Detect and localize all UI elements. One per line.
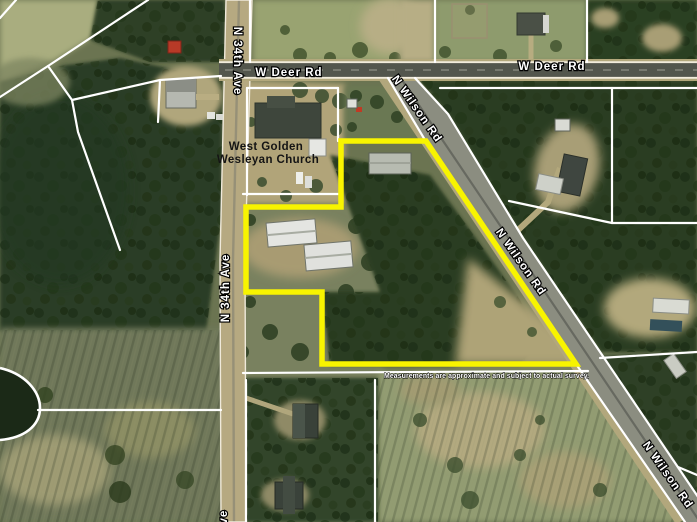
tan-patch-tr1: [591, 8, 619, 28]
shed-small: [347, 99, 357, 108]
garden-plot: [452, 4, 487, 38]
bush: [494, 296, 506, 308]
road-label-n34th-mid: N 34th Ave: [220, 254, 232, 323]
bush: [176, 471, 194, 489]
bush: [109, 481, 131, 503]
building-bottom-house1-roof: [293, 404, 305, 438]
building-church-main: [255, 103, 321, 138]
building-barn1: [266, 219, 317, 247]
building-top-house: [517, 13, 545, 35]
aerial-map[interactable]: W Deer Rd W Deer Rd N 34th Ave N 34th Av…: [0, 0, 697, 522]
building-church-wing: [267, 96, 295, 108]
church-label-line1: West Golden: [229, 141, 303, 153]
building-barn2: [304, 241, 353, 271]
road-label-n34th-top: N 34th Ave: [231, 27, 243, 96]
building-west-house-roof: [166, 79, 196, 92]
vehicles-dark: [650, 319, 683, 332]
building-top-house-porch: [543, 15, 549, 33]
tan-patch-tr2: [642, 24, 682, 52]
church-label-line2: Wesleyan Church: [217, 154, 319, 166]
field-top-tan: [400, 0, 435, 62]
building-mobile-home: [653, 298, 690, 314]
road-label-n34th-bottom-clipped: N 34th Ave: [218, 510, 230, 522]
vehicle-white: [305, 176, 312, 188]
road-label-deer-west: W Deer Rd: [255, 67, 322, 79]
shed-small: [216, 114, 223, 120]
building-bottom-house2-wing: [283, 476, 295, 514]
shed-small: [207, 112, 215, 119]
road-label-deer-east: W Deer Rd: [518, 61, 585, 73]
disclaimer-text: Measurements are approximate and subject…: [384, 373, 589, 380]
map-viewport[interactable]: W Deer Rd W Deer Rd N 34th Ave N 34th Av…: [0, 0, 697, 522]
shed-east: [555, 119, 570, 131]
vehicle-white: [296, 172, 303, 184]
bush: [527, 327, 537, 337]
building-red-shed: [168, 41, 181, 53]
bush: [105, 445, 125, 465]
